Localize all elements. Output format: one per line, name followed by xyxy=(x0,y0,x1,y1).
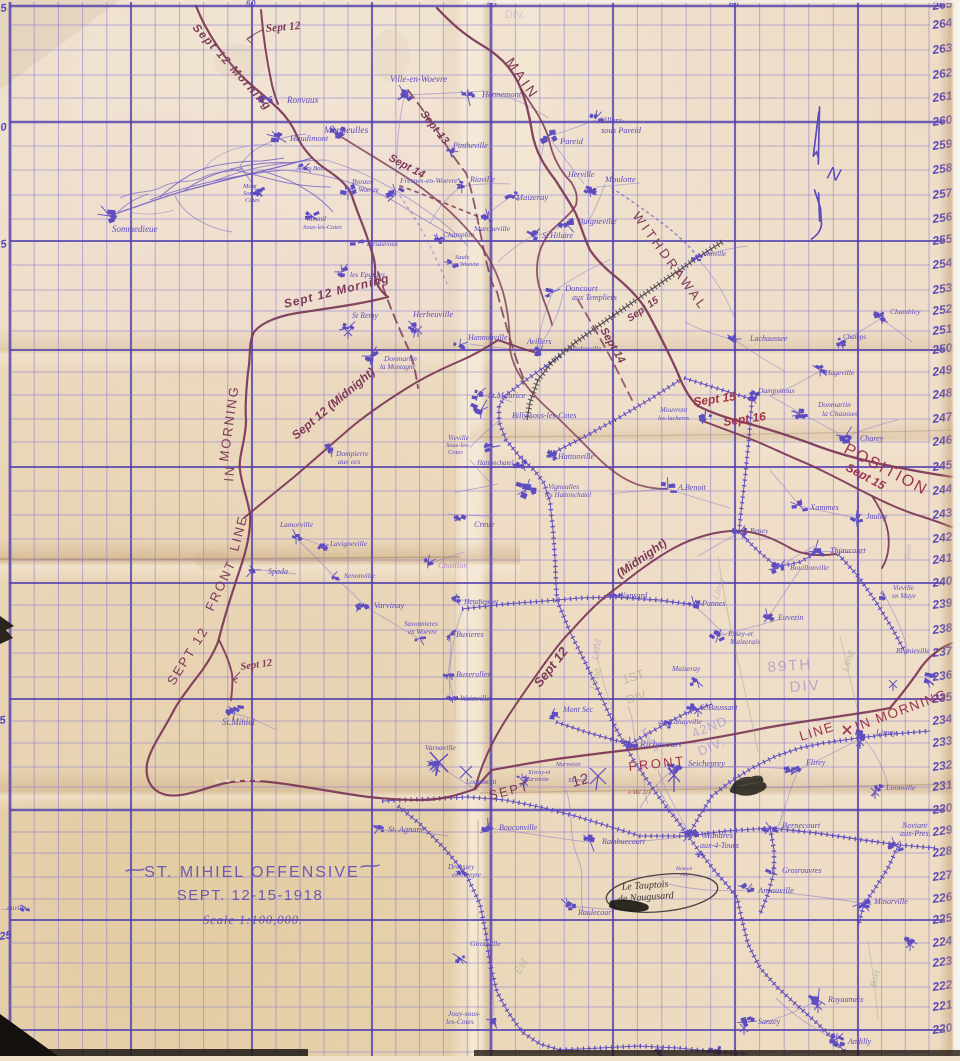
svg-text:Hennemont: Hennemont xyxy=(481,89,522,99)
svg-text:St.Baussant: St.Baussant xyxy=(700,703,738,712)
svg-text:Wadonville: Wadonville xyxy=(570,345,601,353)
svg-text:Varvinay: Varvinay xyxy=(374,600,404,610)
svg-text:en Woevre: en Woevre xyxy=(408,628,437,636)
svg-text:Pannes: Pannes xyxy=(701,599,726,608)
svg-text:Saulx: Saulx xyxy=(455,254,470,261)
svg-text:Bouconville: Bouconville xyxy=(499,823,538,832)
svg-text:Bernecourt: Bernecourt xyxy=(782,820,821,830)
svg-text:Lamorville: Lamorville xyxy=(279,520,314,529)
svg-text:St. Agnant: St. Agnant xyxy=(388,824,424,834)
svg-text:...auville: ...auville xyxy=(2,904,26,912)
svg-text:Loupmont: Loupmont xyxy=(465,777,497,786)
svg-text:Maizeray: Maizeray xyxy=(671,664,701,673)
svg-text:Savonnieres: Savonnieres xyxy=(404,620,438,628)
svg-text:Fresnes-en-Woevre: Fresnes-en-Woevre xyxy=(399,176,458,185)
svg-text:en Woevre: en Woevre xyxy=(452,261,479,268)
svg-text:Bouillonville: Bouillonville xyxy=(790,563,829,572)
svg-text:Ronvaux: Ronvaux xyxy=(286,95,319,105)
svg-text:Royaumeix: Royaumeix xyxy=(827,995,864,1004)
svg-text:Ansauville: Ansauville xyxy=(757,885,794,895)
svg-text:Donmartin: Donmartin xyxy=(383,354,417,363)
svg-text:Mesnil: Mesnil xyxy=(306,215,326,223)
svg-text:Vieville: Vieville xyxy=(448,434,469,442)
svg-text:Minorville: Minorville xyxy=(873,897,908,906)
svg-text:St.Hilaire: St.Hilaire xyxy=(542,231,573,240)
svg-text:A.Benoit: A.Benoit xyxy=(677,483,707,492)
svg-text:Butgneville: Butgneville xyxy=(578,216,617,226)
svg-text:Scale 1:100,000.: Scale 1:100,000. xyxy=(203,913,303,927)
svg-text:Seicheprey: Seicheprey xyxy=(688,758,725,768)
svg-text:Bonzee: Bonzee xyxy=(352,177,374,186)
svg-text:Sommedieue: Sommedieue xyxy=(112,224,157,234)
svg-text:ST. MIHIEL OFFENSIVE: ST. MIHIEL OFFENSIVE xyxy=(144,864,359,881)
svg-text:Champs: Champs xyxy=(843,333,866,341)
svg-text:Sous-les-Cotes: Sous-les-Cotes xyxy=(303,224,342,231)
svg-text:Grosrouvres: Grosrouvres xyxy=(782,866,822,875)
svg-text:Marvoisin: Marvoisin xyxy=(555,762,581,768)
svg-text:en Maye: en Maye xyxy=(892,592,916,600)
svg-text:aux-4-Tours: aux-4-Tours xyxy=(700,841,739,850)
svg-text:St.Mihiel: St.Mihiel xyxy=(222,717,255,727)
svg-text:Bois: Bois xyxy=(902,543,913,560)
svg-text:Euvezin: Euvezin xyxy=(777,613,803,622)
svg-text:Billy-sous-les-Cotes: Billy-sous-les-Cotes xyxy=(512,411,576,420)
svg-text:Mandres: Mandres xyxy=(702,830,734,840)
svg-text:Villers-: Villers- xyxy=(600,115,625,125)
svg-text:Beney: Beney xyxy=(750,526,769,535)
svg-text:Lironville: Lironville xyxy=(885,783,916,792)
svg-text:Cotes: Cotes xyxy=(245,197,260,204)
svg-text:Mont Sec: Mont Sec xyxy=(562,705,593,714)
svg-text:Moulotte: Moulotte xyxy=(604,174,636,184)
svg-text:Hattonchatel: Hattonchatel xyxy=(476,459,514,467)
svg-text:Charey: Charey xyxy=(860,434,884,443)
svg-text:Spada: Spada xyxy=(268,567,288,576)
svg-text:Hageville: Hageville xyxy=(824,368,855,377)
svg-text:Xammes: Xammes xyxy=(809,502,839,512)
svg-text:Mont: Mont xyxy=(242,183,257,190)
svg-text:sous Pareid: sous Pareid xyxy=(601,125,642,135)
svg-text:Mouvront: Mouvront xyxy=(659,406,688,414)
svg-text:la Montagne: la Montagne xyxy=(380,363,416,371)
svg-text:Sanzey: Sanzey xyxy=(758,1017,781,1026)
svg-text:en-Heeyre: en-Heeyre xyxy=(452,871,481,879)
svg-text:Dampvitoux: Dampvitoux xyxy=(757,386,795,395)
svg-text:Champlon: Champlon xyxy=(443,230,475,239)
svg-text:Pareid: Pareid xyxy=(559,136,584,146)
svg-text:Vieville: Vieville xyxy=(893,584,914,592)
svg-text:Senonville: Senonville xyxy=(344,571,376,580)
svg-text:o Mil 211: o Mil 211 xyxy=(628,790,651,796)
svg-text:Sous-les-: Sous-les- xyxy=(446,442,470,449)
svg-text:Creue: Creue xyxy=(474,519,495,529)
svg-text:Pintheville: Pintheville xyxy=(452,141,488,150)
svg-text:Riaville: Riaville xyxy=(469,175,495,184)
svg-text:aux ees: aux ees xyxy=(338,457,360,466)
svg-text:Lachaussee: Lachaussee xyxy=(749,334,788,343)
svg-text:Doncourt: Doncourt xyxy=(564,283,598,293)
svg-text:Hannonville: Hannonville xyxy=(467,333,508,342)
svg-text:Cotes: Cotes xyxy=(448,449,463,456)
svg-text:Lavigneville: Lavigneville xyxy=(329,539,368,548)
svg-text:Regnieville: Regnieville xyxy=(895,646,930,655)
svg-text:Varnaville: Varnaville xyxy=(425,743,456,752)
svg-text:Hattonville: Hattonville xyxy=(557,452,594,461)
svg-text:DIV: DIV xyxy=(789,677,821,696)
svg-text:Manheulles: Manheulles xyxy=(323,126,369,136)
svg-text:Herbeuville: Herbeuville xyxy=(412,309,453,319)
svg-text:Rambuecourt: Rambuecourt xyxy=(601,837,646,846)
svg-text:Raulecourt: Raulecourt xyxy=(577,908,614,917)
svg-text:Gironville: Gironville xyxy=(470,939,501,948)
svg-text:la Chaussee: la Chaussee xyxy=(822,409,859,418)
svg-text:Sous le: Sous le xyxy=(243,190,262,197)
svg-text:St.Maurice: St.Maurice xyxy=(488,390,526,400)
svg-text:Donmartin: Donmartin xyxy=(817,400,851,409)
svg-text:SEPT. 12-15-1918: SEPT. 12-15-1918 xyxy=(177,887,324,904)
svg-text:Jaulny: Jaulny xyxy=(866,512,888,521)
svg-text:Chaillon: Chaillon xyxy=(438,560,468,570)
svg-text:Tresauvoux: Tresauvoux xyxy=(366,240,399,248)
svg-text:Haudimont: Haudimont xyxy=(289,133,329,143)
svg-text:les-Cotes: les-Cotes xyxy=(446,1017,474,1026)
svg-text:les-lacheres: les-lacheres xyxy=(658,415,690,422)
svg-text:aux Templiers: aux Templiers xyxy=(572,293,617,302)
svg-text:aux-Pres.: aux-Pres. xyxy=(900,829,931,838)
svg-text:Maizeray: Maizeray xyxy=(515,192,548,202)
svg-text:Chambley: Chambley xyxy=(890,307,921,316)
svg-text:ville: ville xyxy=(680,872,690,878)
svg-text:Allers Bois: Allers Bois xyxy=(295,165,325,172)
svg-text:Herville: Herville xyxy=(567,170,595,179)
svg-text:Xivray-et: Xivray-et xyxy=(527,770,551,776)
svg-text:Buxieres: Buxieres xyxy=(456,630,484,639)
svg-text:Jonville: Jonville xyxy=(704,250,726,258)
svg-text:St Remy: St Remy xyxy=(352,311,378,320)
svg-text:89TH: 89TH xyxy=(767,656,813,676)
svg-text:DIV.: DIV. xyxy=(505,9,525,21)
svg-text:en Woevre: en Woevre xyxy=(350,186,379,194)
svg-text:Vigneulles: Vigneulles xyxy=(548,482,579,491)
svg-text:Limey: Limey xyxy=(875,727,897,737)
svg-text:50: 50 xyxy=(245,0,256,9)
svg-text:Andilly: Andilly xyxy=(847,1037,872,1046)
svg-text:les Hattonchatel: les Hattonchatel xyxy=(545,491,591,499)
svg-text:Flirey: Flirey xyxy=(805,758,826,767)
svg-text:Buxerulles: Buxerulles xyxy=(456,670,490,679)
svg-text:Avillers: Avillers xyxy=(526,337,551,346)
svg-text:IN: IN xyxy=(221,464,237,482)
svg-text:Droussey: Droussey xyxy=(447,863,475,871)
svg-text:Marcheville: Marcheville xyxy=(473,224,511,233)
svg-text:Heudicourt: Heudicourt xyxy=(463,597,499,606)
svg-text:Nonsard: Nonsard xyxy=(619,591,648,600)
svg-text:Thiaucourt: Thiaucourt xyxy=(830,546,866,555)
svg-text:Woinville: Woinville xyxy=(460,694,490,703)
